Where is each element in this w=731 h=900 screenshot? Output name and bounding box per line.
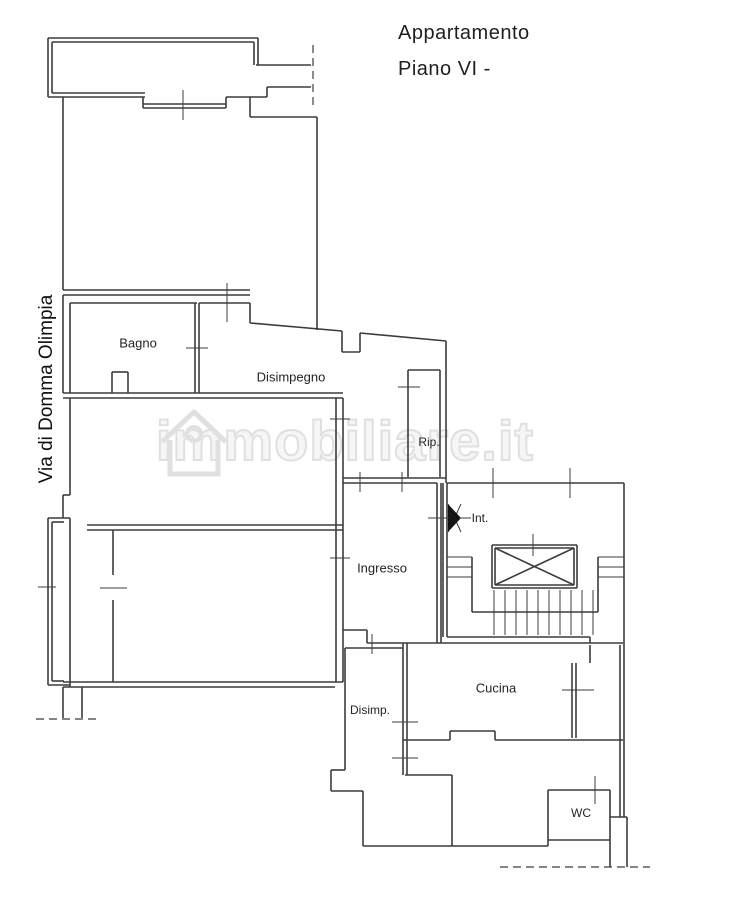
wall-segment bbox=[250, 323, 342, 331]
room-label-wc: WC bbox=[571, 806, 591, 820]
street-label: Via di Domma Olimpia bbox=[36, 274, 58, 504]
room-label-rip: Rip. bbox=[418, 435, 439, 449]
room-label-int: Int. bbox=[472, 511, 489, 525]
floorplan-page: { "title": { "line1": "Appartamento", "l… bbox=[0, 0, 731, 900]
room-label-ingresso: Ingresso bbox=[357, 561, 407, 576]
room-label-disimp: Disimp. bbox=[350, 703, 390, 717]
room-label-cucina: Cucina bbox=[476, 681, 516, 696]
room-label-bagno: Bagno bbox=[119, 336, 157, 351]
page-title: Appartamento bbox=[398, 22, 530, 45]
title-block: Appartamento Piano VI - bbox=[398, 22, 530, 81]
room-label-disimpegno: Disimpegno bbox=[257, 370, 326, 385]
floor-plan-svg bbox=[0, 0, 731, 900]
floor-subtitle: Piano VI - bbox=[398, 58, 530, 81]
wall-segment bbox=[360, 333, 446, 341]
